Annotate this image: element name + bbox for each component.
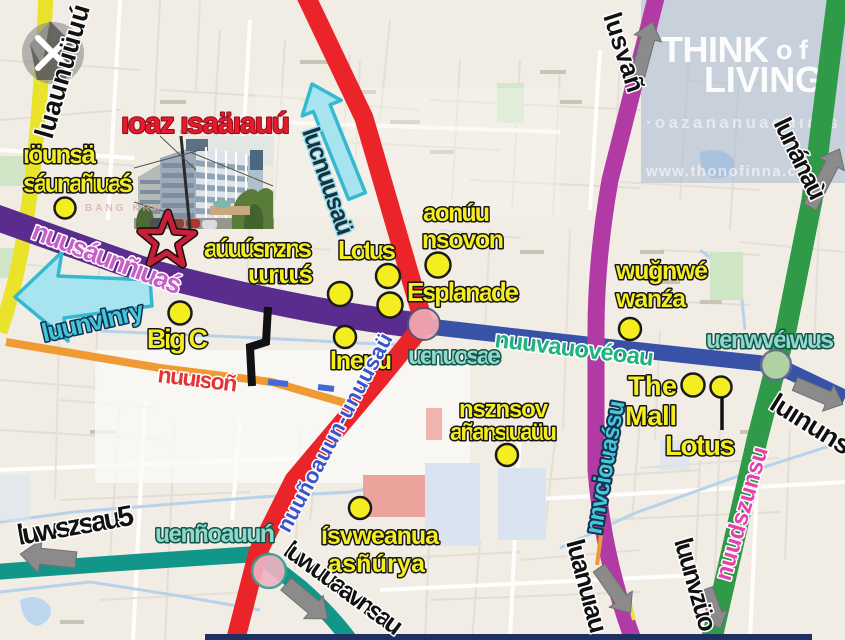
- svg-text:uenwvéıwus: uenwvéıwus: [706, 326, 834, 354]
- svg-text:·oazananuaouıa·s: ·oazananuaouıa·s: [646, 113, 838, 132]
- svg-text:Esplanade: Esplanade: [407, 277, 519, 307]
- svg-text:ıoaz ısaäıauú: ıoaz ısaäıauú: [121, 107, 290, 140]
- svg-text:ıöunsä: ıöunsä: [23, 139, 97, 169]
- svg-text:sáunañıuaś: sáunañıuaś: [23, 168, 133, 198]
- svg-text:ísvweanua: ísvweanua: [321, 522, 440, 550]
- svg-text:uenñoauuń: uenñoauuń: [155, 520, 275, 548]
- svg-text:The: The: [628, 371, 677, 401]
- svg-text:Lotus: Lotus: [665, 430, 735, 461]
- svg-text:aonúu: aonúu: [423, 199, 490, 227]
- svg-text:Big C: Big C: [147, 324, 208, 354]
- svg-text:wanźa: wanźa: [615, 285, 687, 313]
- svg-text:LIVING: LIVING: [704, 59, 823, 100]
- svg-text:uunuuś: uunuuś: [248, 259, 313, 289]
- svg-text:www.thonofinna.c: www.thonofinna.c: [645, 163, 796, 180]
- svg-text:nsovon: nsovon: [422, 226, 504, 254]
- svg-text:Lotus: Lotus: [338, 235, 396, 265]
- svg-text:BANG KRA: BANG KRA: [85, 203, 163, 214]
- svg-text:Mall: Mall: [625, 401, 677, 431]
- svg-text:wuğnwé: wuğnwé: [615, 257, 708, 285]
- svg-text:uenuosae: uenuosae: [408, 342, 501, 370]
- svg-text:añansıuaüu: añansıuaüu: [450, 419, 557, 446]
